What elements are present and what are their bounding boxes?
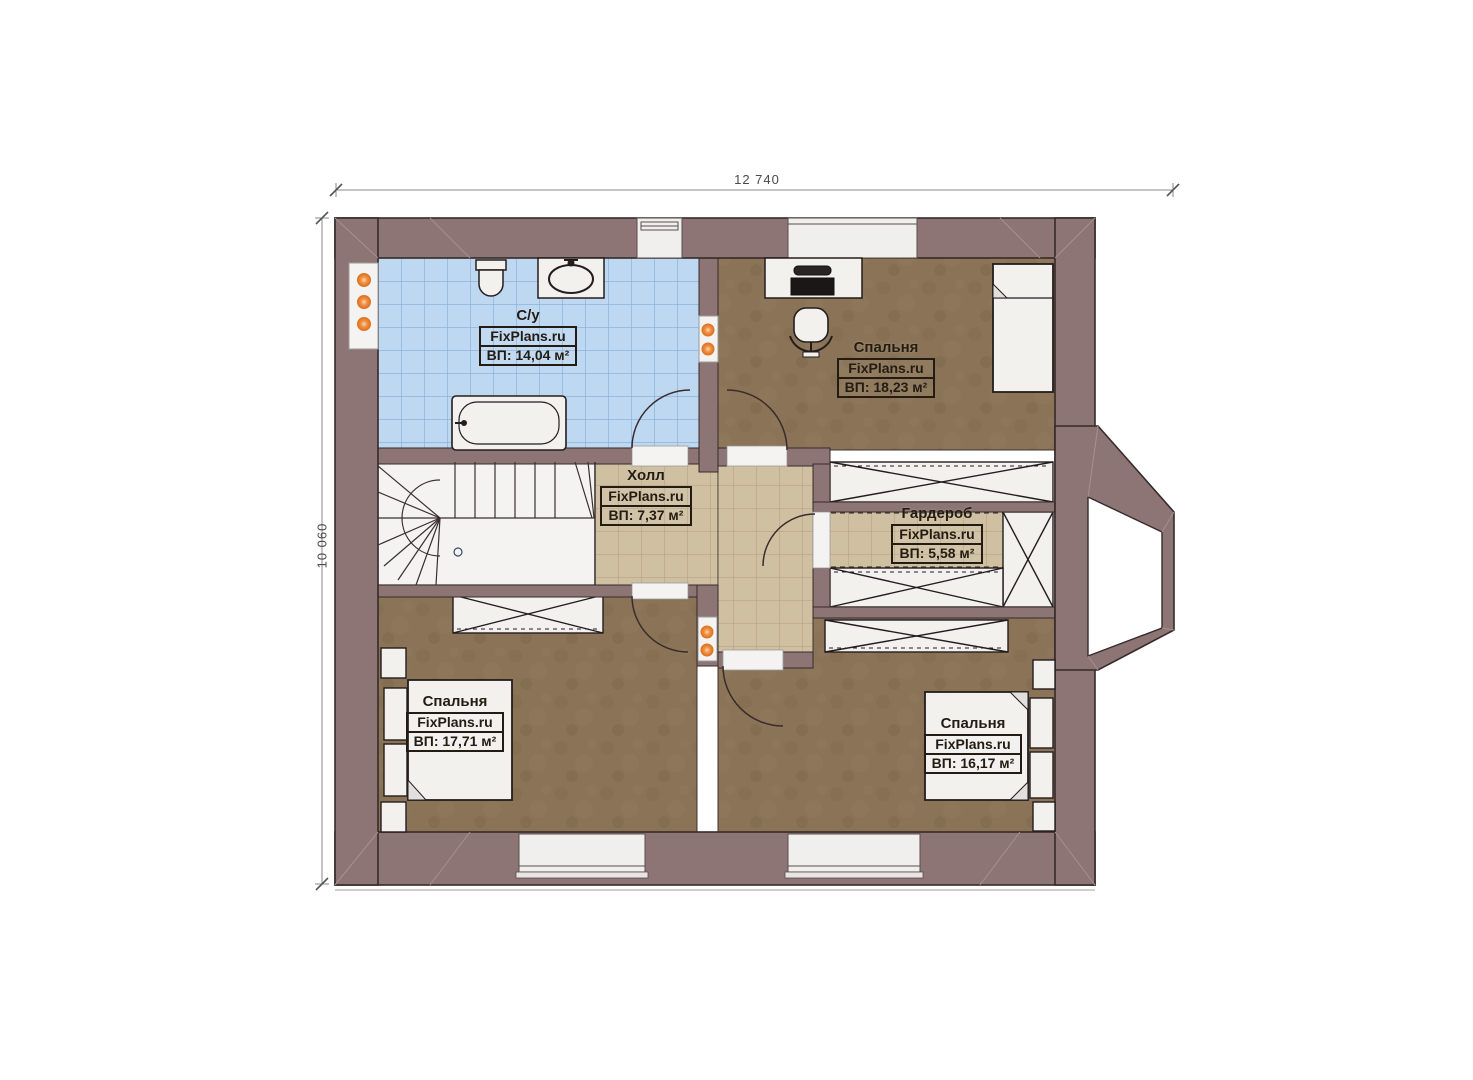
toilet: [476, 260, 506, 296]
bed: [993, 264, 1053, 392]
room-label-bedroom-bottom-right: Спальня FixPlans.ru ВП: 16,17 м²: [916, 716, 1030, 774]
room-source: FixPlans.ru: [408, 714, 503, 733]
sink: [538, 258, 604, 298]
room-source: FixPlans.ru: [893, 526, 980, 545]
closet-unit: [825, 620, 1008, 652]
floor-plan-drawing: [0, 0, 1473, 1080]
room-area: ВП: 7,37 м²: [602, 507, 689, 524]
window: [785, 834, 923, 878]
window: [788, 218, 917, 258]
light-point-icon: [702, 343, 715, 356]
window: [516, 834, 648, 878]
laptop: [791, 266, 834, 295]
staircase-room: [378, 462, 595, 585]
bay-window: [1055, 426, 1174, 670]
closet-unit: [1003, 512, 1053, 607]
room-area: ВП: 16,17 м²: [926, 755, 1021, 772]
room-name: Спальня: [826, 340, 946, 356]
room-area: ВП: 18,23 м²: [839, 379, 934, 396]
light-point-icon: [702, 324, 715, 337]
room-label-wardrobe: Гардероб FixPlans.ru ВП: 5,58 м²: [882, 506, 992, 564]
light-point-icon: [701, 626, 714, 639]
dimension-width-label: 12 740: [712, 172, 802, 187]
desk: [765, 258, 862, 298]
wall-light-panel: [699, 316, 718, 362]
bathtub: [452, 396, 566, 450]
light-point-icon: [357, 295, 371, 309]
wall-light-panel: [349, 263, 378, 349]
room-name: С/у: [464, 308, 592, 324]
room-area: ВП: 5,58 м²: [893, 545, 980, 562]
closet-unit: [453, 595, 603, 633]
nightstand: [1033, 802, 1055, 831]
room-source: FixPlans.ru: [926, 736, 1021, 755]
light-point-icon: [701, 644, 714, 657]
room-name: Спальня: [396, 694, 514, 710]
room-area: ВП: 14,04 м²: [481, 347, 576, 364]
closet-unit: [830, 462, 1053, 502]
nightstand: [381, 802, 406, 832]
room-label-bedroom-bottom-left: Спальня FixPlans.ru ВП: 17,71 м²: [396, 694, 514, 752]
light-point-icon: [357, 317, 371, 331]
window: [637, 218, 682, 258]
room-label-bedroom-top-right: Спальня FixPlans.ru ВП: 18,23 м²: [826, 340, 946, 398]
nightstand: [1033, 660, 1055, 689]
closet-unit: [830, 568, 1003, 607]
floor-plan-page: 12 740 10 060 С/у FixPlans.ru ВП: 14,04 …: [0, 0, 1473, 1080]
light-point-icon: [357, 273, 371, 287]
room-name: Холл: [592, 468, 700, 484]
pillow: [1030, 698, 1053, 748]
nightstand: [381, 648, 406, 678]
room-label-hall: Холл FixPlans.ru ВП: 7,37 м²: [592, 468, 700, 526]
room-source: FixPlans.ru: [481, 328, 576, 347]
room-name: Спальня: [916, 716, 1030, 732]
room-area: ВП: 17,71 м²: [408, 733, 503, 750]
room-name: Гардероб: [882, 506, 992, 522]
room-source: FixPlans.ru: [839, 360, 934, 379]
room-label-bathroom: С/у FixPlans.ru ВП: 14,04 м²: [464, 308, 592, 366]
wall-light-panel: [698, 617, 717, 661]
dimension-height-label: 10 060: [315, 501, 330, 591]
pillow: [1030, 752, 1053, 798]
room-source: FixPlans.ru: [602, 488, 689, 507]
